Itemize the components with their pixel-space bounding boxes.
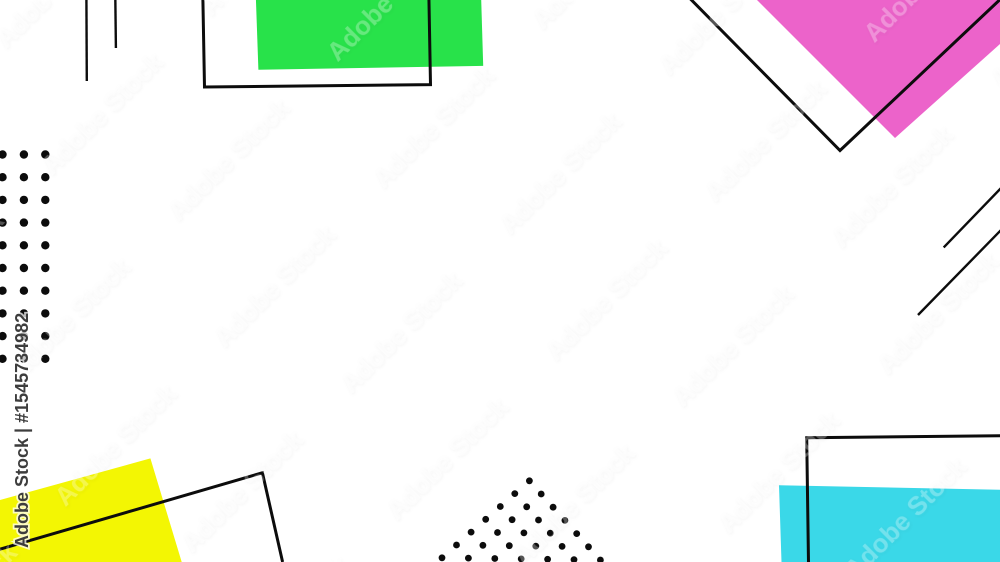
svg-text:Adobe Stock | #1545734982: Adobe Stock | #1545734982 bbox=[12, 313, 32, 548]
